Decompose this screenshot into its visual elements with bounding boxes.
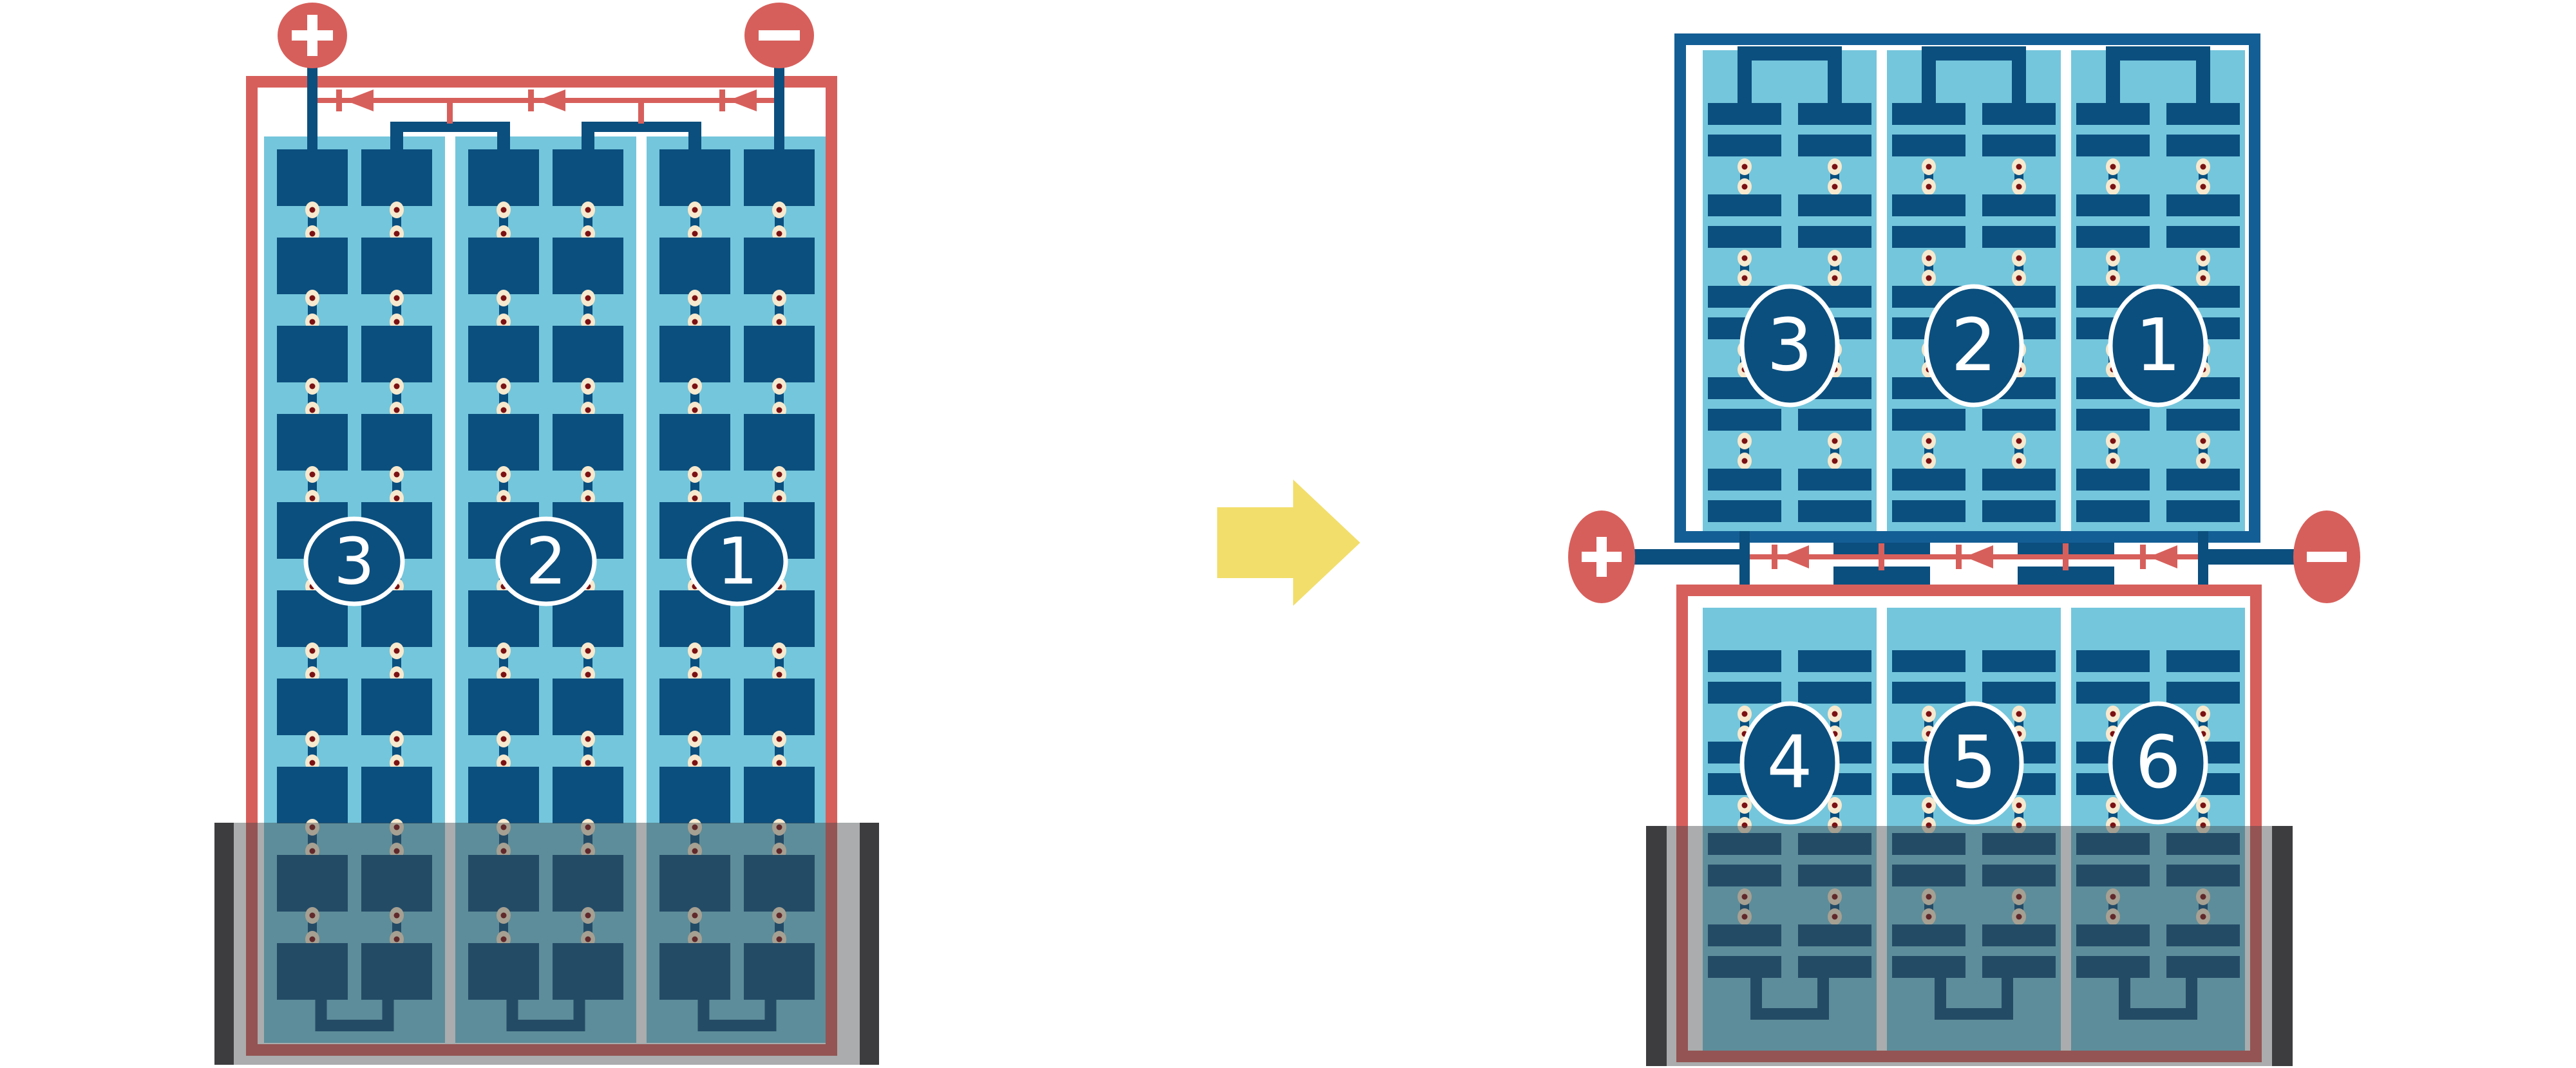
cell-number: 2 bbox=[1951, 304, 1996, 388]
rivet-dot-icon bbox=[777, 736, 782, 742]
plate bbox=[659, 414, 730, 471]
rivet-dot-icon bbox=[2201, 184, 2206, 190]
plate bbox=[1982, 409, 2056, 431]
plate bbox=[361, 238, 432, 294]
rivet-dot-icon bbox=[2201, 276, 2206, 281]
rivet-dot-icon bbox=[2016, 438, 2022, 444]
rivet-dot-icon bbox=[585, 472, 591, 478]
rivet-dot-icon bbox=[692, 231, 698, 237]
left-arrowhead-icon bbox=[345, 89, 374, 111]
rivet-dot-icon bbox=[585, 672, 591, 678]
plate bbox=[2166, 409, 2240, 431]
cell-badge: 4 bbox=[1742, 704, 1837, 822]
left-arrowhead-icon bbox=[537, 89, 565, 111]
plate bbox=[1892, 226, 1965, 248]
rivet-dot-icon bbox=[2016, 458, 2022, 464]
plate bbox=[1798, 103, 1871, 125]
rivet-dot-icon bbox=[1742, 256, 1748, 261]
left-arrowhead-icon bbox=[1781, 545, 1809, 568]
case-edge bbox=[1646, 826, 1667, 1066]
cell-badge: 6 bbox=[2110, 704, 2206, 822]
rivet-dot-icon bbox=[2110, 184, 2116, 190]
case-edge bbox=[2272, 826, 2293, 1066]
rivet-dot-icon bbox=[1742, 711, 1748, 717]
current-flow-line bbox=[1750, 543, 2199, 570]
plate bbox=[1708, 194, 1781, 216]
rivet-dot-icon bbox=[692, 472, 698, 478]
cell-divider bbox=[2061, 50, 2071, 531]
plate bbox=[1708, 469, 1781, 491]
cell-number: 4 bbox=[1766, 721, 1812, 805]
negative-terminal bbox=[2293, 511, 2360, 603]
plate bbox=[1708, 650, 1781, 672]
rivet-dot-icon bbox=[1832, 256, 1838, 261]
rivet-dot-icon bbox=[2201, 803, 2206, 809]
positive-terminal bbox=[1568, 511, 1635, 603]
plate bbox=[553, 679, 623, 735]
cell-badge: 3 bbox=[306, 519, 402, 604]
rivet-dot-icon bbox=[1832, 711, 1838, 717]
rivet-dot-icon bbox=[501, 408, 507, 413]
rivet-dot-icon bbox=[1832, 184, 1838, 190]
cell-number: 6 bbox=[2135, 721, 2181, 805]
rivet-dot-icon bbox=[585, 408, 591, 413]
rivet-dot-icon bbox=[310, 736, 316, 742]
rivet-dot-icon bbox=[310, 672, 316, 678]
case-tray bbox=[214, 823, 879, 1065]
transform-arrow-icon bbox=[1217, 480, 1360, 606]
plate bbox=[361, 767, 432, 823]
rivet-dot-icon bbox=[394, 384, 400, 389]
cell-badge: 2 bbox=[498, 519, 594, 604]
rivet-dot-icon bbox=[1742, 164, 1748, 170]
plate bbox=[744, 149, 815, 206]
rivet-dot-icon bbox=[394, 736, 400, 742]
plate bbox=[2076, 469, 2150, 491]
rivet-dot-icon bbox=[585, 736, 591, 742]
plate bbox=[1798, 226, 1871, 248]
rivet-dot-icon bbox=[1742, 276, 1748, 281]
rivet-dot-icon bbox=[777, 760, 782, 766]
terminal-post bbox=[307, 64, 317, 158]
rivet-dot-icon bbox=[1742, 438, 1748, 444]
plate bbox=[1892, 409, 1965, 431]
rivet-dot-icon bbox=[1832, 803, 1838, 809]
rivet-dot-icon bbox=[692, 384, 698, 389]
rivet-dot-icon bbox=[1742, 184, 1748, 190]
rivet-dot-icon bbox=[2110, 803, 2116, 809]
plate bbox=[553, 414, 623, 471]
flow-tick bbox=[719, 89, 725, 111]
minus-icon bbox=[2307, 552, 2347, 562]
rivet-dot-icon bbox=[501, 207, 507, 213]
right-battery: 3 2 1 bbox=[1568, 39, 2360, 1066]
negative-terminal bbox=[744, 3, 814, 68]
plate bbox=[2076, 103, 2150, 125]
plate bbox=[361, 326, 432, 382]
rivet-dot-icon bbox=[394, 319, 400, 325]
plate bbox=[1798, 682, 1871, 704]
plate bbox=[553, 238, 623, 294]
cell-badge: 1 bbox=[689, 519, 786, 604]
rivet-dot-icon bbox=[501, 384, 507, 389]
flow-branch bbox=[638, 103, 644, 124]
plate bbox=[2076, 135, 2150, 156]
rivet-dot-icon bbox=[2110, 438, 2116, 444]
plate bbox=[2076, 409, 2150, 431]
rivet-dot-icon bbox=[777, 295, 782, 301]
rivet-dot-icon bbox=[585, 319, 591, 325]
plate bbox=[1708, 226, 1781, 248]
plate bbox=[1982, 194, 2056, 216]
flow-tick bbox=[2140, 545, 2146, 569]
rivet-dot-icon bbox=[394, 648, 400, 654]
plate bbox=[1892, 103, 1965, 125]
plate bbox=[659, 767, 730, 823]
rivet-dot-icon bbox=[2016, 276, 2022, 281]
plate bbox=[277, 414, 348, 471]
flow-tick bbox=[1772, 545, 1777, 569]
plate bbox=[1982, 469, 2056, 491]
plate bbox=[1798, 469, 1871, 491]
plate bbox=[659, 238, 730, 294]
case-overlay bbox=[1646, 826, 2293, 1066]
terminal-wire bbox=[2206, 549, 2296, 565]
rivet-dot-icon bbox=[2016, 256, 2022, 261]
cell-badge: 5 bbox=[1926, 704, 2022, 822]
rivet-dot-icon bbox=[585, 231, 591, 237]
terminal-wire bbox=[1633, 549, 1743, 565]
rivet-dot-icon bbox=[692, 672, 698, 678]
rivet-dot-icon bbox=[1926, 458, 1932, 464]
top-connector-bar bbox=[1922, 46, 2026, 61]
plate bbox=[277, 326, 348, 382]
plate bbox=[1892, 469, 1965, 491]
rivet-dot-icon bbox=[2016, 803, 2022, 809]
rivet-dot-icon bbox=[777, 648, 782, 654]
rivet-dot-icon bbox=[310, 496, 316, 501]
rivet-dot-icon bbox=[2201, 438, 2206, 444]
plate bbox=[468, 238, 539, 294]
plate bbox=[2076, 682, 2150, 704]
rivet-dot-icon bbox=[777, 672, 782, 678]
cell-divider bbox=[1877, 50, 1887, 531]
rivet-dot-icon bbox=[1832, 458, 1838, 464]
rivet-dot-icon bbox=[501, 231, 507, 237]
rivet-dot-icon bbox=[692, 760, 698, 766]
cell-number: 5 bbox=[1951, 721, 1996, 805]
rivet-dot-icon bbox=[1832, 438, 1838, 444]
rivet-dot-icon bbox=[585, 207, 591, 213]
plate bbox=[2166, 135, 2240, 156]
rivet-dot-icon bbox=[501, 319, 507, 325]
rivet-dot-icon bbox=[2201, 164, 2206, 170]
rivet-dot-icon bbox=[585, 496, 591, 501]
bus-bar-leg bbox=[497, 122, 510, 155]
rivet-dot-icon bbox=[310, 231, 316, 237]
plate bbox=[1708, 500, 1781, 522]
rivet-dot-icon bbox=[2110, 711, 2116, 717]
rivet-dot-icon bbox=[692, 207, 698, 213]
rivet-dot-icon bbox=[501, 648, 507, 654]
plate bbox=[1708, 682, 1781, 704]
rivet-dot-icon bbox=[585, 295, 591, 301]
plate bbox=[553, 767, 623, 823]
cell-number: 1 bbox=[2135, 304, 2181, 388]
plate bbox=[361, 679, 432, 735]
rivet-dot-icon bbox=[2201, 256, 2206, 261]
rivet-dot-icon bbox=[692, 496, 698, 501]
rivet-dot-icon bbox=[310, 319, 316, 325]
cell-number: 1 bbox=[717, 524, 758, 599]
plate bbox=[361, 414, 432, 471]
plate bbox=[1708, 409, 1781, 431]
rivet-dot-icon bbox=[394, 408, 400, 413]
plate bbox=[1798, 194, 1871, 216]
flow-tick bbox=[2063, 543, 2069, 570]
rivet-dot-icon bbox=[394, 295, 400, 301]
plate bbox=[277, 767, 348, 823]
rivet-dot-icon bbox=[394, 672, 400, 678]
rivet-dot-icon bbox=[394, 231, 400, 237]
rivet-dot-icon bbox=[1926, 256, 1932, 261]
rivet-dot-icon bbox=[1926, 184, 1932, 190]
cell-badge: 3 bbox=[1742, 286, 1837, 405]
plate bbox=[2166, 194, 2240, 216]
plate bbox=[2166, 469, 2240, 491]
plate bbox=[2076, 226, 2150, 248]
current-flow-line bbox=[312, 89, 779, 124]
rivet-dot-icon bbox=[585, 760, 591, 766]
plate bbox=[2076, 500, 2150, 522]
plate bbox=[468, 149, 539, 206]
plate bbox=[659, 679, 730, 735]
terminal-post bbox=[774, 64, 784, 158]
rivet-dot-icon bbox=[585, 384, 591, 389]
rivet-dot-icon bbox=[1742, 458, 1748, 464]
plate bbox=[1798, 500, 1871, 522]
rivet-dot-icon bbox=[501, 295, 507, 301]
rivet-dot-icon bbox=[2201, 458, 2206, 464]
rivet-dot-icon bbox=[777, 384, 782, 389]
plate bbox=[744, 326, 815, 382]
rivet-dot-icon bbox=[310, 648, 316, 654]
rivet-dot-icon bbox=[501, 496, 507, 501]
rivet-dot-icon bbox=[2016, 164, 2022, 170]
plate bbox=[553, 326, 623, 382]
case-edge bbox=[860, 823, 879, 1065]
plate bbox=[277, 679, 348, 735]
rivet-dot-icon bbox=[310, 408, 316, 413]
plate bbox=[659, 326, 730, 382]
rivet-dot-icon bbox=[1926, 803, 1932, 809]
plate bbox=[1892, 194, 1965, 216]
plate bbox=[1982, 682, 2056, 704]
rivet-dot-icon bbox=[692, 408, 698, 413]
plate bbox=[1798, 409, 1871, 431]
plate bbox=[468, 679, 539, 735]
rivet-dot-icon bbox=[501, 672, 507, 678]
plate bbox=[2166, 682, 2240, 704]
rivet-dot-icon bbox=[501, 760, 507, 766]
plate bbox=[1798, 650, 1871, 672]
cell-number: 2 bbox=[526, 524, 567, 599]
plate bbox=[744, 767, 815, 823]
plate bbox=[1892, 650, 1965, 672]
rivet-dot-icon bbox=[2110, 164, 2116, 170]
rivet-dot-icon bbox=[310, 207, 316, 213]
rivet-dot-icon bbox=[692, 319, 698, 325]
plate bbox=[553, 149, 623, 206]
plate bbox=[468, 767, 539, 823]
plate bbox=[277, 149, 348, 206]
rivet-dot-icon bbox=[692, 295, 698, 301]
bus-bar-leg bbox=[390, 122, 403, 155]
cell-badge: 1 bbox=[2110, 286, 2206, 405]
left-battery: 3 2 1 bbox=[214, 3, 879, 1065]
plate bbox=[468, 414, 539, 471]
plate bbox=[1892, 682, 1965, 704]
case-edge bbox=[214, 823, 234, 1065]
rivet-dot-icon bbox=[394, 472, 400, 478]
rivet-dot-icon bbox=[777, 231, 782, 237]
cell-badge: 2 bbox=[1926, 286, 2022, 405]
rivet-dot-icon bbox=[394, 496, 400, 501]
left-arrowhead-icon bbox=[2149, 545, 2177, 568]
plate bbox=[1982, 135, 2056, 156]
plate bbox=[744, 414, 815, 471]
plate bbox=[2166, 103, 2240, 125]
flow-branch bbox=[447, 103, 453, 124]
flow-tick bbox=[1956, 545, 1962, 569]
flow-tick bbox=[1879, 543, 1884, 570]
bus-bar-leg bbox=[688, 122, 701, 155]
rivet-dot-icon bbox=[310, 384, 316, 389]
rivet-dot-icon bbox=[2110, 458, 2116, 464]
rivet-dot-icon bbox=[1926, 711, 1932, 717]
rivet-dot-icon bbox=[310, 760, 316, 766]
rivet-dot-icon bbox=[501, 736, 507, 742]
plate bbox=[1798, 135, 1871, 156]
rivet-dot-icon bbox=[1832, 164, 1838, 170]
flow-tick bbox=[336, 89, 342, 111]
rivet-dot-icon bbox=[394, 207, 400, 213]
plate bbox=[744, 238, 815, 294]
plate bbox=[1892, 500, 1965, 522]
positive-terminal bbox=[278, 3, 347, 68]
plate bbox=[1708, 103, 1781, 125]
flow-tick bbox=[528, 89, 534, 111]
rivet-dot-icon bbox=[777, 408, 782, 413]
rivet-dot-icon bbox=[1926, 164, 1932, 170]
rivet-dot-icon bbox=[1926, 276, 1932, 281]
rivet-dot-icon bbox=[310, 472, 316, 478]
rivet-dot-icon bbox=[310, 295, 316, 301]
rivet-dot-icon bbox=[777, 472, 782, 478]
plate bbox=[2076, 194, 2150, 216]
cell-number: 3 bbox=[334, 524, 375, 599]
plate bbox=[2076, 650, 2150, 672]
bus-bar-leg bbox=[582, 122, 594, 155]
top-half: 3 2 1 bbox=[1680, 39, 2255, 537]
diagram-canvas: 3 2 1 3 bbox=[0, 0, 2576, 1068]
plate bbox=[277, 238, 348, 294]
rivet-dot-icon bbox=[777, 207, 782, 213]
case-tray bbox=[1646, 826, 2293, 1066]
plate bbox=[1982, 103, 2056, 125]
plate bbox=[2166, 500, 2240, 522]
plate bbox=[1708, 135, 1781, 156]
rivet-dot-icon bbox=[394, 760, 400, 766]
plate bbox=[659, 149, 730, 206]
plate bbox=[468, 326, 539, 382]
battery-diagram: 3 2 1 3 bbox=[0, 0, 2576, 1068]
rivet-dot-icon bbox=[1742, 803, 1748, 809]
top-connector-bar bbox=[1738, 46, 1842, 61]
rivet-dot-icon bbox=[777, 496, 782, 501]
plate bbox=[1982, 650, 2056, 672]
rivet-dot-icon bbox=[2110, 256, 2116, 261]
rivet-dot-icon bbox=[2016, 184, 2022, 190]
rivet-dot-icon bbox=[501, 472, 507, 478]
rivet-dot-icon bbox=[692, 736, 698, 742]
rivet-dot-icon bbox=[692, 648, 698, 654]
rivet-dot-icon bbox=[2016, 711, 2022, 717]
plate bbox=[2166, 226, 2240, 248]
plate bbox=[1892, 135, 1965, 156]
rivet-dot-icon bbox=[777, 319, 782, 325]
minus-icon bbox=[759, 30, 800, 41]
rivet-dot-icon bbox=[1926, 438, 1932, 444]
case-overlay bbox=[214, 823, 879, 1065]
top-connector-bar bbox=[2106, 46, 2210, 61]
cell-number: 3 bbox=[1766, 304, 1812, 388]
plate bbox=[744, 679, 815, 735]
plate bbox=[2166, 650, 2240, 672]
left-arrowhead-icon bbox=[1965, 545, 1993, 568]
rivet-dot-icon bbox=[1832, 276, 1838, 281]
rivet-dot-icon bbox=[585, 648, 591, 654]
plate bbox=[1982, 500, 2056, 522]
left-arrowhead-icon bbox=[728, 89, 757, 111]
plate bbox=[361, 149, 432, 206]
plate bbox=[1982, 226, 2056, 248]
rivet-dot-icon bbox=[2201, 711, 2206, 717]
rivet-dot-icon bbox=[2110, 276, 2116, 281]
